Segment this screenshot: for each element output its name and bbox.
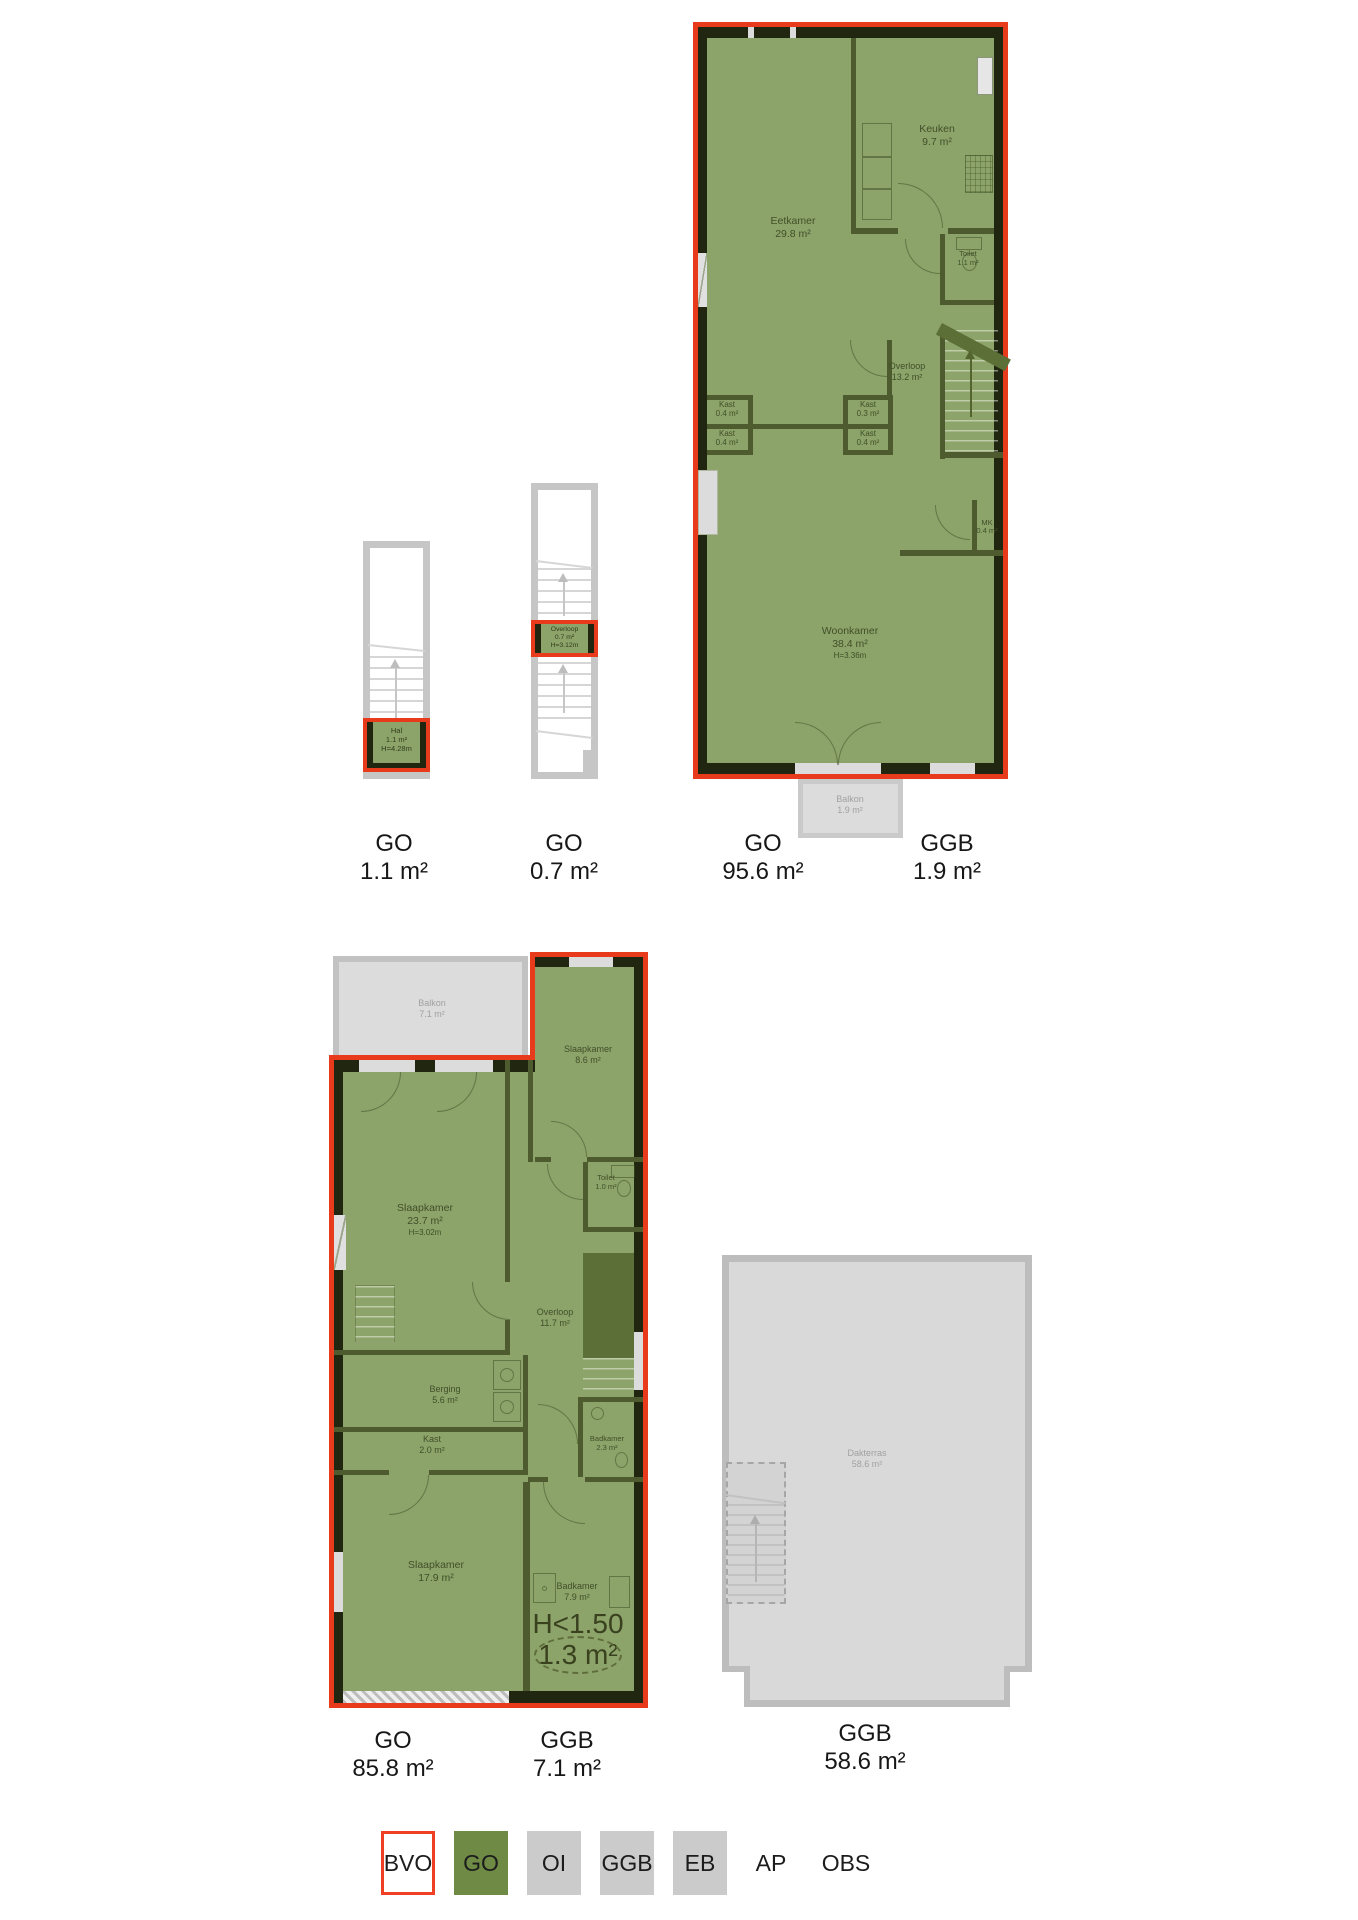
caption-go-overloop: GO 0.7 m²: [530, 830, 598, 886]
caption-area: 7.1 m²: [533, 1755, 601, 1783]
plan-living-floor: Keuken 9.7 m² Eetkamer 29.8 m² Toilet 1.…: [693, 22, 1008, 779]
legend-label: EB: [685, 1850, 716, 1877]
room-label-mk: MK 0.4 m²: [976, 519, 997, 536]
legend-label: OBS: [822, 1850, 871, 1877]
room-name: Keuken: [919, 123, 955, 136]
wall: [578, 1402, 583, 1477]
window: [930, 763, 975, 774]
washer: [493, 1360, 521, 1390]
room-height: H=3.02m: [397, 1228, 453, 1238]
door-arc: [795, 722, 838, 765]
room-area: 0.7 m²: [535, 634, 594, 642]
loft-stair-treads: [355, 1285, 395, 1343]
caption-code: GO: [722, 830, 803, 858]
room-name: Woonkamer: [822, 625, 878, 638]
legend-label: GO: [463, 1850, 499, 1877]
caption-ggb-living: GGB 1.9 m²: [913, 830, 981, 886]
door-arc: [850, 340, 887, 377]
caption-go-sleeping: GO 85.8 m²: [352, 1727, 433, 1783]
bvo-outline: [643, 952, 648, 1708]
room-area: 7.1 m²: [418, 1009, 446, 1020]
wall: [843, 450, 893, 455]
wall: [583, 1227, 643, 1232]
wall: [585, 1477, 643, 1482]
room-name: Overloop: [889, 361, 926, 372]
stair-break-line: [368, 644, 425, 652]
dryer-drum-icon: [500, 1400, 514, 1414]
wall: [334, 1470, 389, 1475]
wall: [528, 1060, 533, 1162]
roof-notch: [1004, 1666, 1032, 1707]
wall: [900, 550, 1003, 556]
wall: [334, 1427, 528, 1432]
room-label-eetkamer: Eetkamer 29.8 m²: [771, 215, 816, 241]
stair-treads: [583, 1358, 634, 1397]
caption-area: 1.9 m²: [913, 858, 981, 886]
wall: [698, 38, 707, 774]
counter-divider: [863, 156, 891, 158]
room-area: 8.6 m²: [564, 1055, 612, 1066]
wall: [523, 1482, 530, 1691]
caption-area: 1.1 m²: [360, 858, 428, 886]
room-label-slaapkamer: Slaapkamer 17.9 m²: [408, 1559, 464, 1585]
wall: [888, 395, 893, 455]
wall: [851, 38, 856, 228]
wall: [583, 750, 591, 772]
room-label-dakterras: Dakterras 58.6 m²: [847, 1448, 886, 1471]
plan-stairwell-overloop: Overloop 0.7 m² H=3.12m: [531, 483, 598, 779]
wall: [753, 424, 843, 429]
wall: [523, 1355, 528, 1470]
room-label-badkamer: Badkamer 7.9 m²: [556, 1581, 597, 1604]
wall: [505, 1060, 510, 1282]
wall: [940, 300, 994, 305]
toilet-bowl: [615, 1452, 628, 1468]
plan-stairwell-hal: Hal 1.1 m² H=4.28m: [363, 541, 430, 779]
shower-tray: [533, 1573, 556, 1603]
caption-code: GO: [352, 1727, 433, 1755]
duct-box: [977, 57, 993, 95]
room-label-kast: Kast 0.4 m²: [716, 430, 739, 448]
room-label-toilet: Toilet 1.1 m²: [957, 249, 978, 268]
caption-code: GO: [360, 830, 428, 858]
wall: [334, 1350, 510, 1355]
wall: [851, 228, 898, 234]
washer-drum-icon: [500, 1368, 514, 1382]
stair-up-arrow-icon: [558, 573, 568, 582]
room-label-kast: Kast 2.0 m²: [419, 1434, 445, 1457]
room-area: 5.6 m²: [429, 1395, 460, 1406]
stairwell-dashed-outline: [726, 1462, 786, 1604]
window: [359, 1060, 415, 1072]
low-height-oval: [534, 1636, 622, 1674]
room-area: 38.4 m²: [822, 638, 878, 651]
room-area: 29.8 m²: [771, 228, 816, 241]
window: [790, 27, 796, 38]
room-area: 23.7 m²: [397, 1215, 453, 1228]
wall: [948, 228, 994, 234]
room-name: Overloop: [537, 1307, 574, 1318]
room-name: Balkon: [418, 998, 446, 1009]
stair-up-arrow-icon: [558, 664, 568, 673]
balkon-living-floor: Balkon 1.9 m²: [798, 779, 903, 838]
room-area: 0.3 m²: [857, 410, 880, 419]
stair-up-arrow-icon: [965, 350, 975, 359]
door-arc: [838, 722, 881, 765]
room-name: Kast: [419, 1434, 445, 1445]
stair-up-arrow-icon: [390, 659, 400, 668]
kitchen-counter: [862, 123, 892, 220]
room-name: Slaapkamer: [397, 1202, 453, 1215]
room-hal: Hal 1.1 m² H=4.28m: [363, 718, 430, 772]
room-area: 9.7 m²: [919, 136, 955, 149]
wall: [587, 1157, 643, 1162]
stair-up-arrow-icon: [750, 1515, 760, 1524]
legend-item-ap: AP: [744, 1831, 798, 1895]
bvo-outline: [530, 952, 535, 1060]
roof-notch: [722, 1666, 750, 1707]
room-area: 58.6 m²: [847, 1459, 886, 1470]
legend-label: AP: [756, 1850, 787, 1877]
room-area: 11.7 m²: [537, 1318, 574, 1329]
room-area: 0.4 m²: [716, 439, 739, 448]
room-area: 17.9 m²: [408, 1572, 464, 1585]
wall: [843, 395, 848, 455]
legend-label: GGB: [601, 1850, 652, 1877]
room-name: Overloop: [535, 626, 594, 634]
wall: [707, 450, 753, 455]
room-label-kast: Kast 0.3 m²: [857, 401, 880, 419]
window: [748, 27, 754, 38]
wall: [698, 27, 1003, 38]
shower-drain-icon: [542, 1586, 547, 1591]
door-arc: [935, 505, 970, 540]
caption-area: 58.6 m²: [824, 1748, 905, 1776]
dryer: [493, 1392, 521, 1422]
caption-ggb-sleeping: GGB 7.1 m²: [533, 1727, 601, 1783]
bathtub: [609, 1576, 630, 1608]
room-label-kast: Kast 0.4 m²: [857, 430, 880, 448]
stair-direction-line: [395, 668, 397, 718]
caption-code: GO: [530, 830, 598, 858]
caption-area: 85.8 m²: [352, 1755, 433, 1783]
wall: [578, 1397, 643, 1402]
stair-direction-line: [563, 582, 565, 616]
caption-go-hal: GO 1.1 m²: [360, 830, 428, 886]
legend-item-eb: EB: [673, 1831, 727, 1895]
room-label-balkon: Balkon 7.1 m²: [418, 998, 446, 1021]
balkon-sleeping-floor: Balkon 7.1 m²: [333, 956, 528, 1055]
caption-area: 0.7 m²: [530, 858, 598, 886]
room-name: Eetkamer: [771, 215, 816, 228]
caption-area: 95.6 m²: [722, 858, 803, 886]
room-name: Balkon: [836, 794, 864, 805]
room-label-slaapkamer: Slaapkamer 23.7 m² H=3.02m: [397, 1202, 453, 1238]
toilet-bowl: [617, 1180, 631, 1197]
window: [634, 1332, 643, 1390]
window-column: [698, 470, 718, 535]
room-name: Berging: [429, 1384, 460, 1395]
wall: [535, 1157, 551, 1162]
legend-item-bvo: BVO: [381, 1831, 435, 1895]
caption-code: GGB: [824, 1720, 905, 1748]
room-name: Slaapkamer: [408, 1559, 464, 1572]
room-area: 0.4 m²: [976, 527, 997, 535]
legend-item-go: GO: [454, 1831, 508, 1895]
room-height: H=3.36m: [822, 651, 878, 661]
room-name: Toilet: [957, 249, 978, 258]
door-arc: [898, 183, 943, 228]
room-label-overloop: Overloop 11.7 m²: [537, 1307, 574, 1330]
legend-item-ggb: GGB: [600, 1831, 654, 1895]
wall: [583, 1162, 588, 1227]
caption-ggb-roof: GGB 58.6 m²: [824, 1720, 905, 1776]
legend-item-obs: OBS: [814, 1831, 878, 1895]
room-name: Slaapkamer: [564, 1044, 612, 1055]
legend-label: OI: [542, 1850, 566, 1877]
room-area: 2.0 m²: [419, 1445, 445, 1456]
room-area: 1.0 m²: [595, 1183, 616, 1192]
counter-divider: [863, 188, 891, 190]
low-height-label: H<1.50: [532, 1608, 623, 1639]
door-arc: [905, 239, 940, 274]
room-name: Badkamer: [556, 1581, 597, 1592]
room-label-berging: Berging 5.6 m²: [429, 1384, 460, 1407]
stair-direction-line: [563, 673, 565, 713]
room-area: 2.3 m²: [590, 1444, 624, 1453]
room-label-badkamer: Badkamer 2.3 m²: [590, 1435, 624, 1452]
floorplan-sheet: Hal 1.1 m² H=4.28m Overloop 0.7 m² H=3.1…: [0, 0, 1358, 1920]
legend-item-oi: OI: [527, 1831, 581, 1895]
room-area: 0.4 m²: [716, 410, 739, 419]
plan-sleeping-floor: Balkon 7.1 m²: [329, 952, 648, 1708]
stair-direction-line: [970, 359, 972, 417]
stair-break-line: [536, 730, 593, 739]
stair-flight: [583, 1253, 634, 1358]
room-label-toilet: Toilet 1.0 m²: [595, 1174, 616, 1191]
sink: [591, 1407, 604, 1420]
window: [698, 253, 707, 307]
caption-go-living: GO 95.6 m²: [722, 830, 803, 886]
plan-roof-terrace: Dakterras 58.6 m²: [722, 1255, 1032, 1707]
room-label-kast: Kast 0.4 m²: [716, 401, 739, 419]
caption-code: GGB: [913, 830, 981, 858]
hatched-wall: [343, 1691, 509, 1703]
room-label-overloop: Overloop 13.2 m²: [889, 361, 926, 384]
room-name: Dakterras: [847, 1448, 886, 1459]
stair-direction-line: [755, 1524, 757, 1582]
legend-label: BVO: [384, 1850, 433, 1877]
room-area: 1.9 m²: [836, 805, 864, 816]
wall: [940, 234, 945, 300]
room-area: 13.2 m²: [889, 372, 926, 383]
room-area: 0.4 m²: [857, 439, 880, 448]
room-label-keuken: Keuken 9.7 m²: [919, 123, 955, 149]
room-area: 7.9 m²: [556, 1592, 597, 1603]
window: [435, 1060, 493, 1072]
wall: [940, 452, 1003, 458]
room-label-woonkamer: Woonkamer 38.4 m² H=3.36m: [822, 625, 878, 661]
bvo-outline: [329, 1703, 648, 1708]
stair-break-line: [726, 1494, 786, 1504]
wall: [429, 1470, 528, 1475]
room-height: H=4.28m: [367, 745, 426, 754]
room-height: H=3.12m: [535, 642, 594, 650]
wall: [505, 1320, 510, 1350]
window-column: [334, 1215, 346, 1270]
room-overloop: Overloop 0.7 m² H=3.12m: [531, 620, 598, 657]
stove-hob: [965, 155, 993, 193]
room-area: 1.1 m²: [957, 258, 978, 267]
room-label-slaapkamer: Slaapkamer 8.6 m²: [564, 1044, 612, 1067]
caption-code: GGB: [533, 1727, 601, 1755]
window: [569, 957, 613, 967]
window: [334, 1552, 343, 1612]
room-label-balkon: Balkon 1.9 m²: [836, 794, 864, 817]
